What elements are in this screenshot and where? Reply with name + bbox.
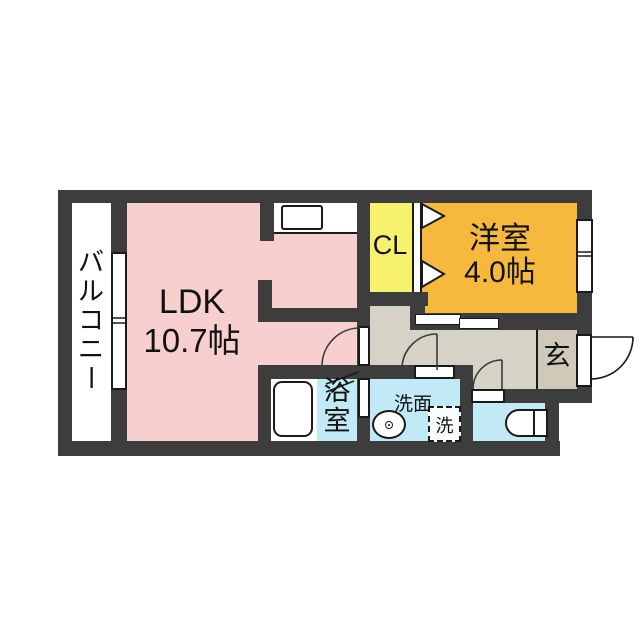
balcony-label-char-5: ー (77, 362, 106, 394)
laundry-label: 洗 (429, 414, 460, 438)
balcony-label-char-2: ル (75, 276, 107, 305)
wall-bath-left (258, 365, 271, 441)
kitchen-sink (281, 205, 323, 230)
balcony-label-char-4: ニ (75, 334, 107, 363)
washbasin-dot (388, 424, 390, 426)
ldk-label: LDK (117, 283, 267, 321)
western-room-sliding-pane-1 (415, 314, 461, 325)
entrance-door-leaf (576, 334, 592, 387)
western-room-size-label: 4.0帖 (425, 256, 575, 290)
wall-ldk-t-horizontal (258, 308, 362, 322)
balcony-label-char-1: バ (75, 247, 107, 276)
wall-closet-bottom (357, 292, 428, 306)
ldk-floor-lower (127, 366, 258, 441)
balcony-label-char-3: コ (75, 305, 107, 334)
wall-washroom-toilet (460, 365, 473, 456)
entrance-label: 玄 (541, 341, 573, 371)
ldk-door-leaf (358, 326, 370, 366)
wall-outer-bottom (58, 441, 560, 456)
wall-outer-left (58, 190, 72, 456)
toilet-tank (533, 409, 548, 437)
entrance-door-arc (591, 337, 633, 379)
western-room-sliding-pane-2 (459, 318, 499, 329)
toilet-door-leaf (471, 389, 505, 403)
western-room-label: 洋室 (425, 221, 575, 255)
hallway-floor-lower (473, 366, 536, 389)
washroom-label: 洗面 (385, 393, 441, 415)
wall-kitchen-stub (260, 203, 274, 241)
bath-label-char-1: 浴 (321, 377, 353, 406)
ldk-size-label: 10.7帖 (112, 320, 272, 360)
floor-plan: LDK 10.7帖 洋室 4.0帖 CL 玄 洗面 洗 浴 室 バ ル コ ニ … (0, 0, 640, 640)
wall-outer-top (58, 190, 592, 203)
hallway-floor-main (370, 330, 536, 366)
washroom-door-leaf (414, 365, 455, 379)
bath-door-leaf (358, 378, 370, 418)
bathtub (273, 381, 313, 437)
closet-label: CL (366, 229, 414, 261)
western-room-window (576, 219, 593, 293)
bath-label-char-2: 室 (321, 407, 353, 436)
